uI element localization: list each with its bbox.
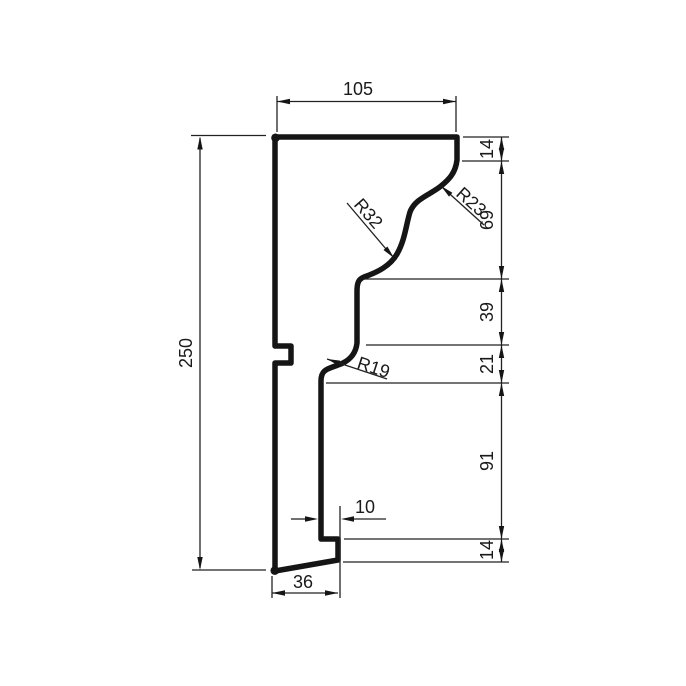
arrowhead-right [325, 590, 338, 595]
arrowhead-right [305, 516, 318, 521]
arrowhead-left [341, 516, 354, 521]
arrowhead [499, 332, 504, 345]
dim-label-seg-3: 39 [477, 302, 497, 322]
arrowhead [499, 266, 504, 279]
corner-dot-top-left [271, 134, 280, 143]
dim-label-total-height: 250 [176, 338, 196, 368]
dim-label-seg-4: 21 [477, 354, 497, 374]
arrowhead [499, 161, 504, 174]
radius-label-r19: R19 [355, 353, 393, 382]
dim-label-seg-1: 14 [477, 139, 497, 159]
dim-label-step-width: 10 [355, 497, 375, 517]
arrowhead-down [197, 557, 202, 570]
dim-total-height: 250 [176, 136, 266, 571]
corner-dot-bottom-left [271, 566, 280, 575]
arrowhead [499, 370, 504, 383]
dim-top-width: 105 [277, 79, 456, 132]
arrowhead [499, 549, 504, 562]
arrowhead [499, 526, 504, 539]
arrowhead [499, 279, 504, 292]
radius-label-r32: R32 [350, 195, 387, 233]
profile-drawing: 105 250 14 69 39 21 91 14 [0, 0, 686, 686]
arrowhead [499, 148, 504, 161]
dim-label-seg-5: 91 [477, 451, 497, 471]
drawing-canvas: 105 250 14 69 39 21 91 14 [0, 0, 686, 686]
arrowhead-left [277, 99, 290, 104]
dim-step-width: 10 [291, 497, 386, 522]
arrowhead [499, 345, 504, 358]
arrowhead-left [272, 590, 285, 595]
arrowhead [499, 383, 504, 396]
leader-r32: R32 [347, 195, 394, 258]
dim-label-seg-6: 14 [477, 540, 497, 560]
arrowhead-right [443, 99, 456, 104]
arrowhead-up [197, 137, 202, 150]
dim-label-bottom-width: 36 [293, 572, 313, 592]
dim-label-top-width: 105 [343, 79, 373, 99]
